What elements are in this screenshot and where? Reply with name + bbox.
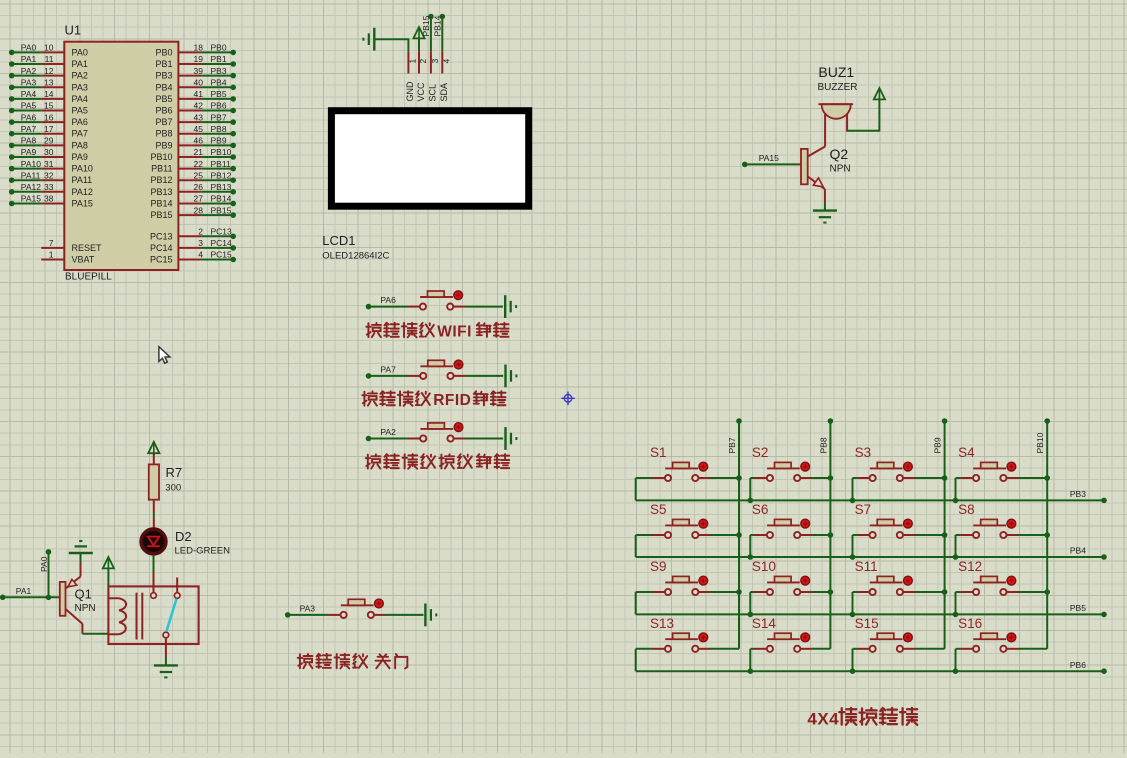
svg-text:PA5: PA5: [72, 106, 88, 116]
svg-text:18: 18: [194, 43, 204, 53]
svg-text:PB8: PB8: [155, 129, 172, 139]
svg-text:LCD1: LCD1: [322, 233, 355, 248]
svg-text:PB1: PB1: [155, 59, 172, 69]
svg-text:PB15: PB15: [150, 210, 172, 220]
svg-text:1: 1: [49, 250, 54, 260]
svg-text:31: 31: [44, 159, 54, 169]
svg-text:PA12: PA12: [21, 182, 41, 192]
svg-text:NPN: NPN: [830, 164, 851, 175]
svg-text:S15: S15: [855, 616, 879, 631]
svg-text:PA2: PA2: [380, 427, 396, 437]
svg-text:PA8: PA8: [72, 140, 88, 150]
svg-text:17: 17: [44, 124, 54, 134]
svg-text:PB3: PB3: [1070, 489, 1086, 499]
svg-text:PB9: PB9: [211, 136, 227, 146]
svg-text:25: 25: [194, 170, 204, 180]
svg-text:10: 10: [44, 43, 54, 53]
svg-text:PA15: PA15: [72, 199, 93, 209]
svg-text:PB4: PB4: [1070, 546, 1086, 556]
svg-text:40: 40: [194, 78, 204, 88]
svg-text:21: 21: [194, 147, 204, 157]
svg-text:PA3: PA3: [21, 78, 37, 88]
svg-text:26: 26: [194, 182, 204, 192]
svg-text:PB10: PB10: [1035, 432, 1045, 453]
svg-text:U1: U1: [65, 23, 82, 38]
svg-text:S13: S13: [650, 616, 674, 631]
svg-text:WIFI: WIFI: [437, 324, 472, 341]
svg-text:SDA: SDA: [439, 83, 449, 102]
svg-text:PB12: PB12: [150, 175, 172, 185]
svg-text:S11: S11: [855, 559, 878, 574]
svg-text:PB11: PB11: [211, 159, 231, 169]
svg-text:PB5: PB5: [155, 94, 172, 104]
svg-text:42: 42: [194, 101, 204, 111]
svg-text:PB0: PB0: [211, 43, 227, 53]
svg-text:PA0: PA0: [21, 43, 37, 53]
svg-text:33: 33: [44, 182, 54, 192]
svg-text:PC13: PC13: [211, 227, 233, 237]
svg-text:PA7: PA7: [72, 129, 88, 139]
svg-text:13: 13: [44, 78, 54, 88]
svg-text:PB5: PB5: [211, 89, 227, 99]
svg-text:PA3: PA3: [72, 82, 88, 92]
svg-text:PA0: PA0: [39, 556, 49, 572]
svg-text:PC14: PC14: [150, 243, 173, 253]
svg-text:RFID: RFID: [433, 392, 471, 409]
svg-text:PB7: PB7: [155, 117, 172, 127]
svg-text:PC15: PC15: [211, 250, 233, 260]
svg-text:PB10: PB10: [211, 147, 232, 157]
svg-text:S6: S6: [752, 502, 769, 517]
svg-text:S5: S5: [650, 502, 667, 517]
svg-text:PA11: PA11: [72, 175, 93, 185]
svg-text:LED-GREEN: LED-GREEN: [175, 546, 231, 557]
svg-text:PA6: PA6: [72, 117, 88, 127]
svg-text:4: 4: [441, 59, 451, 64]
svg-text:2: 2: [198, 227, 203, 237]
svg-text:PB3: PB3: [211, 66, 227, 76]
svg-text:15: 15: [44, 101, 54, 111]
svg-text:46: 46: [194, 136, 204, 146]
svg-text:PB6: PB6: [1070, 660, 1086, 670]
svg-text:PB10: PB10: [150, 152, 172, 162]
svg-text:S7: S7: [855, 502, 872, 517]
svg-text:PA1: PA1: [72, 59, 88, 69]
svg-text:S3: S3: [855, 445, 872, 460]
svg-text:PA1: PA1: [16, 586, 32, 596]
svg-text:19: 19: [194, 54, 204, 64]
svg-text:3: 3: [198, 238, 203, 248]
svg-text:PC14: PC14: [211, 238, 233, 248]
svg-text:Q2: Q2: [830, 146, 849, 162]
svg-text:41: 41: [194, 89, 204, 99]
svg-text:S2: S2: [752, 445, 769, 460]
svg-text:28: 28: [194, 205, 204, 215]
svg-text:PA6: PA6: [21, 112, 37, 122]
svg-text:PB3: PB3: [155, 71, 172, 81]
svg-text:PB7: PB7: [211, 112, 227, 122]
svg-text:BLUEPILL: BLUEPILL: [65, 272, 112, 283]
svg-text:300: 300: [165, 483, 181, 494]
svg-text:PB6: PB6: [155, 106, 172, 116]
svg-text:PC15: PC15: [150, 255, 173, 265]
svg-text:14: 14: [44, 89, 54, 99]
svg-text:PB6: PB6: [211, 101, 227, 111]
svg-text:39: 39: [194, 66, 204, 76]
svg-text:43: 43: [194, 112, 204, 122]
svg-text:PB8: PB8: [818, 437, 828, 453]
svg-text:PA5: PA5: [21, 101, 37, 111]
svg-text:PA2: PA2: [72, 71, 88, 81]
svg-text:GND: GND: [405, 81, 415, 102]
svg-text:S16: S16: [958, 616, 982, 631]
svg-text:S8: S8: [958, 502, 975, 517]
svg-text:PA3: PA3: [300, 604, 316, 614]
svg-text:PA15: PA15: [21, 194, 41, 204]
svg-text:4X4: 4X4: [807, 709, 839, 728]
svg-text:RESET: RESET: [72, 243, 103, 253]
svg-text:22: 22: [194, 159, 204, 169]
svg-text:PA10: PA10: [21, 159, 41, 169]
svg-text:PA15: PA15: [759, 153, 779, 163]
svg-text:OLED12864I2C: OLED12864I2C: [322, 251, 389, 262]
svg-text:38: 38: [44, 194, 54, 204]
svg-text:PA7: PA7: [380, 365, 396, 375]
svg-text:PB14: PB14: [432, 15, 442, 36]
svg-text:PB7: PB7: [727, 437, 737, 453]
svg-text:16: 16: [44, 112, 54, 122]
svg-text:VCC: VCC: [416, 82, 426, 102]
svg-text:S4: S4: [958, 445, 975, 460]
svg-text:30: 30: [44, 147, 54, 157]
svg-text:PB13: PB13: [211, 182, 232, 192]
svg-text:PA4: PA4: [21, 89, 37, 99]
svg-text:PA8: PA8: [21, 136, 37, 146]
svg-text:S9: S9: [650, 559, 667, 574]
svg-text:PB13: PB13: [150, 187, 172, 197]
svg-text:PB5: PB5: [1070, 603, 1086, 613]
svg-text:Q1: Q1: [75, 587, 92, 602]
svg-text:3: 3: [430, 59, 440, 64]
svg-text:7: 7: [49, 238, 54, 248]
svg-text:4: 4: [198, 250, 203, 260]
svg-text:PA12: PA12: [72, 187, 93, 197]
svg-text:PA9: PA9: [21, 147, 37, 157]
svg-text:BUZZER: BUZZER: [818, 82, 858, 93]
svg-text:BUZ1: BUZ1: [818, 64, 854, 80]
svg-text:VBAT: VBAT: [72, 255, 95, 265]
svg-text:S12: S12: [958, 559, 982, 574]
svg-text:D2: D2: [175, 529, 192, 544]
svg-text:PB12: PB12: [211, 170, 232, 180]
svg-text:PB14: PB14: [211, 194, 232, 204]
svg-text:R7: R7: [166, 465, 183, 480]
svg-text:PA11: PA11: [21, 170, 41, 180]
svg-text:PB15: PB15: [421, 15, 431, 36]
svg-text:PB4: PB4: [155, 82, 172, 92]
svg-text:SCL: SCL: [428, 84, 438, 102]
svg-text:PB14: PB14: [150, 199, 172, 209]
svg-text:S14: S14: [752, 616, 777, 631]
svg-text:PB4: PB4: [211, 78, 227, 88]
svg-text:S10: S10: [752, 559, 776, 574]
svg-text:PB11: PB11: [151, 164, 172, 174]
svg-text:PC13: PC13: [150, 231, 173, 241]
svg-text:PA9: PA9: [72, 152, 88, 162]
svg-text:2: 2: [418, 59, 428, 64]
svg-text:PA1: PA1: [21, 54, 37, 64]
svg-text:PA10: PA10: [72, 164, 93, 174]
svg-text:PB9: PB9: [933, 437, 943, 453]
svg-text:PB15: PB15: [211, 205, 232, 215]
svg-text:12: 12: [44, 66, 54, 76]
svg-text:PA7: PA7: [21, 124, 37, 134]
svg-text:29: 29: [44, 136, 54, 146]
svg-text:PA0: PA0: [72, 47, 88, 57]
svg-text:PB1: PB1: [211, 54, 227, 64]
svg-text:PA2: PA2: [21, 66, 37, 76]
svg-text:S1: S1: [650, 445, 667, 460]
svg-text:32: 32: [44, 170, 54, 180]
svg-text:45: 45: [194, 124, 204, 134]
svg-text:PA6: PA6: [380, 295, 396, 305]
svg-text:PB9: PB9: [155, 140, 172, 150]
svg-text:1: 1: [407, 59, 417, 64]
svg-text:27: 27: [194, 194, 204, 204]
svg-text:PB0: PB0: [155, 47, 172, 57]
svg-text:NPN: NPN: [75, 603, 96, 614]
svg-text:11: 11: [45, 54, 54, 64]
svg-text:PB8: PB8: [211, 124, 227, 134]
svg-text:PA4: PA4: [72, 94, 88, 104]
